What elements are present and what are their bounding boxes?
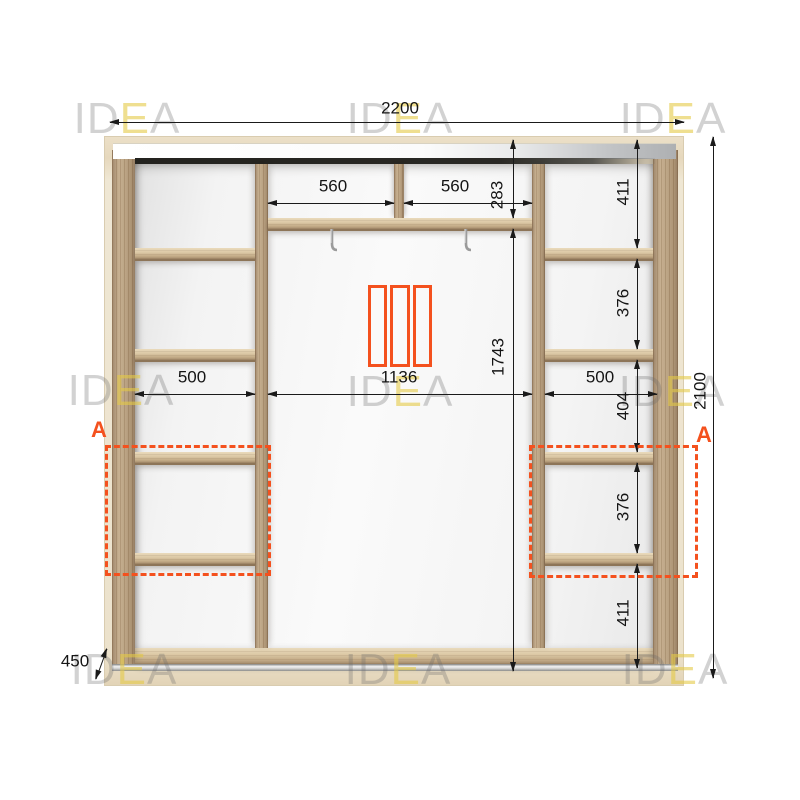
wardrobe-technical-drawing: IDEA IDEA IDEA IDEA IDEA IDEA IDEA IDEA … xyxy=(0,0,800,800)
dim-total-width-line xyxy=(110,122,684,123)
dim-right-cell-2-line xyxy=(637,259,638,349)
dim-right-cell-1-value: 411 xyxy=(615,178,632,205)
arrow-down-icon xyxy=(634,239,640,249)
arrow-left-icon xyxy=(109,119,119,125)
arrow-left-icon xyxy=(267,200,277,206)
arrow-left-icon xyxy=(267,391,277,397)
dim-top-shelf-right-value: 560 xyxy=(441,178,469,195)
arrow-down-icon xyxy=(710,669,716,679)
dim-hanging-height-value: 1743 xyxy=(490,338,507,376)
left-column-shelf xyxy=(135,248,255,261)
section-a-label-right: A xyxy=(696,422,712,448)
arrow-down-icon xyxy=(634,340,640,350)
dim-top-shelf-left-value: 560 xyxy=(319,178,347,195)
hanger-hook-icon xyxy=(327,229,339,255)
arrow-right-icon xyxy=(246,391,256,397)
top-middle-divider xyxy=(394,164,404,218)
arrow-up-icon xyxy=(510,228,516,238)
top-sliding-track xyxy=(113,143,676,159)
arrow-right-icon xyxy=(523,391,533,397)
arrow-right-icon xyxy=(648,391,658,397)
dim-right-cell-1-line xyxy=(637,140,638,248)
door-panel-icon xyxy=(413,285,432,367)
hanger-hook-icon xyxy=(461,229,473,255)
sliding-doors-icon xyxy=(368,285,432,367)
cabinet-right-wall xyxy=(653,150,678,664)
arrow-down-icon xyxy=(92,669,101,680)
arrow-right-icon xyxy=(675,119,685,125)
center-top-shelf xyxy=(268,218,532,231)
section-a-label-left: A xyxy=(91,417,107,443)
arrow-up-icon xyxy=(710,136,716,146)
dim-left-column-width-value: 500 xyxy=(178,369,206,386)
arrow-left-icon xyxy=(544,391,554,397)
dim-right-cell-2-value: 376 xyxy=(615,289,632,317)
dim-center-width-line xyxy=(268,394,532,395)
arrow-up-icon xyxy=(634,359,640,369)
dim-right-column-width-line xyxy=(545,394,657,395)
dim-hanging-height-line xyxy=(513,229,514,671)
dim-center-width-value: 1136 xyxy=(381,369,418,386)
dim-right-cell-5-line xyxy=(637,564,638,668)
arrow-left-icon xyxy=(134,391,144,397)
dim-top-section-height-value: 283 xyxy=(489,181,506,209)
section-a-box-left xyxy=(105,445,271,576)
bottom-sliding-rail xyxy=(112,664,678,671)
dim-left-column-width-line xyxy=(135,394,255,395)
arrow-up-icon xyxy=(634,258,640,268)
dim-right-cell-3-line xyxy=(637,360,638,452)
arrow-up-icon xyxy=(634,139,640,149)
section-a-box-right xyxy=(529,445,698,578)
dim-right-cell-3-value: 404 xyxy=(615,392,632,420)
left-column-shelf xyxy=(135,349,255,362)
dim-total-height-value: 2100 xyxy=(692,372,709,410)
dim-right-cell-5-value: 411 xyxy=(615,599,632,626)
arrow-down-icon xyxy=(510,209,516,219)
arrow-down-icon xyxy=(634,659,640,669)
dim-top-section-height-line xyxy=(513,140,514,218)
dim-depth-value: 450 xyxy=(61,653,89,670)
arrow-up-icon xyxy=(510,139,516,149)
arrow-right-icon xyxy=(523,200,533,206)
arrow-left-icon xyxy=(403,200,413,206)
arrow-down-icon xyxy=(510,662,516,672)
door-panel-icon xyxy=(390,285,409,367)
dim-top-shelf-left-line xyxy=(268,203,394,204)
dim-right-column-width-value: 500 xyxy=(586,369,614,386)
dim-total-width-value: 2200 xyxy=(381,100,419,117)
cabinet-left-wall xyxy=(112,150,135,664)
dim-total-height-line xyxy=(713,137,714,678)
door-panel-icon xyxy=(368,285,387,367)
arrow-right-icon xyxy=(385,200,395,206)
